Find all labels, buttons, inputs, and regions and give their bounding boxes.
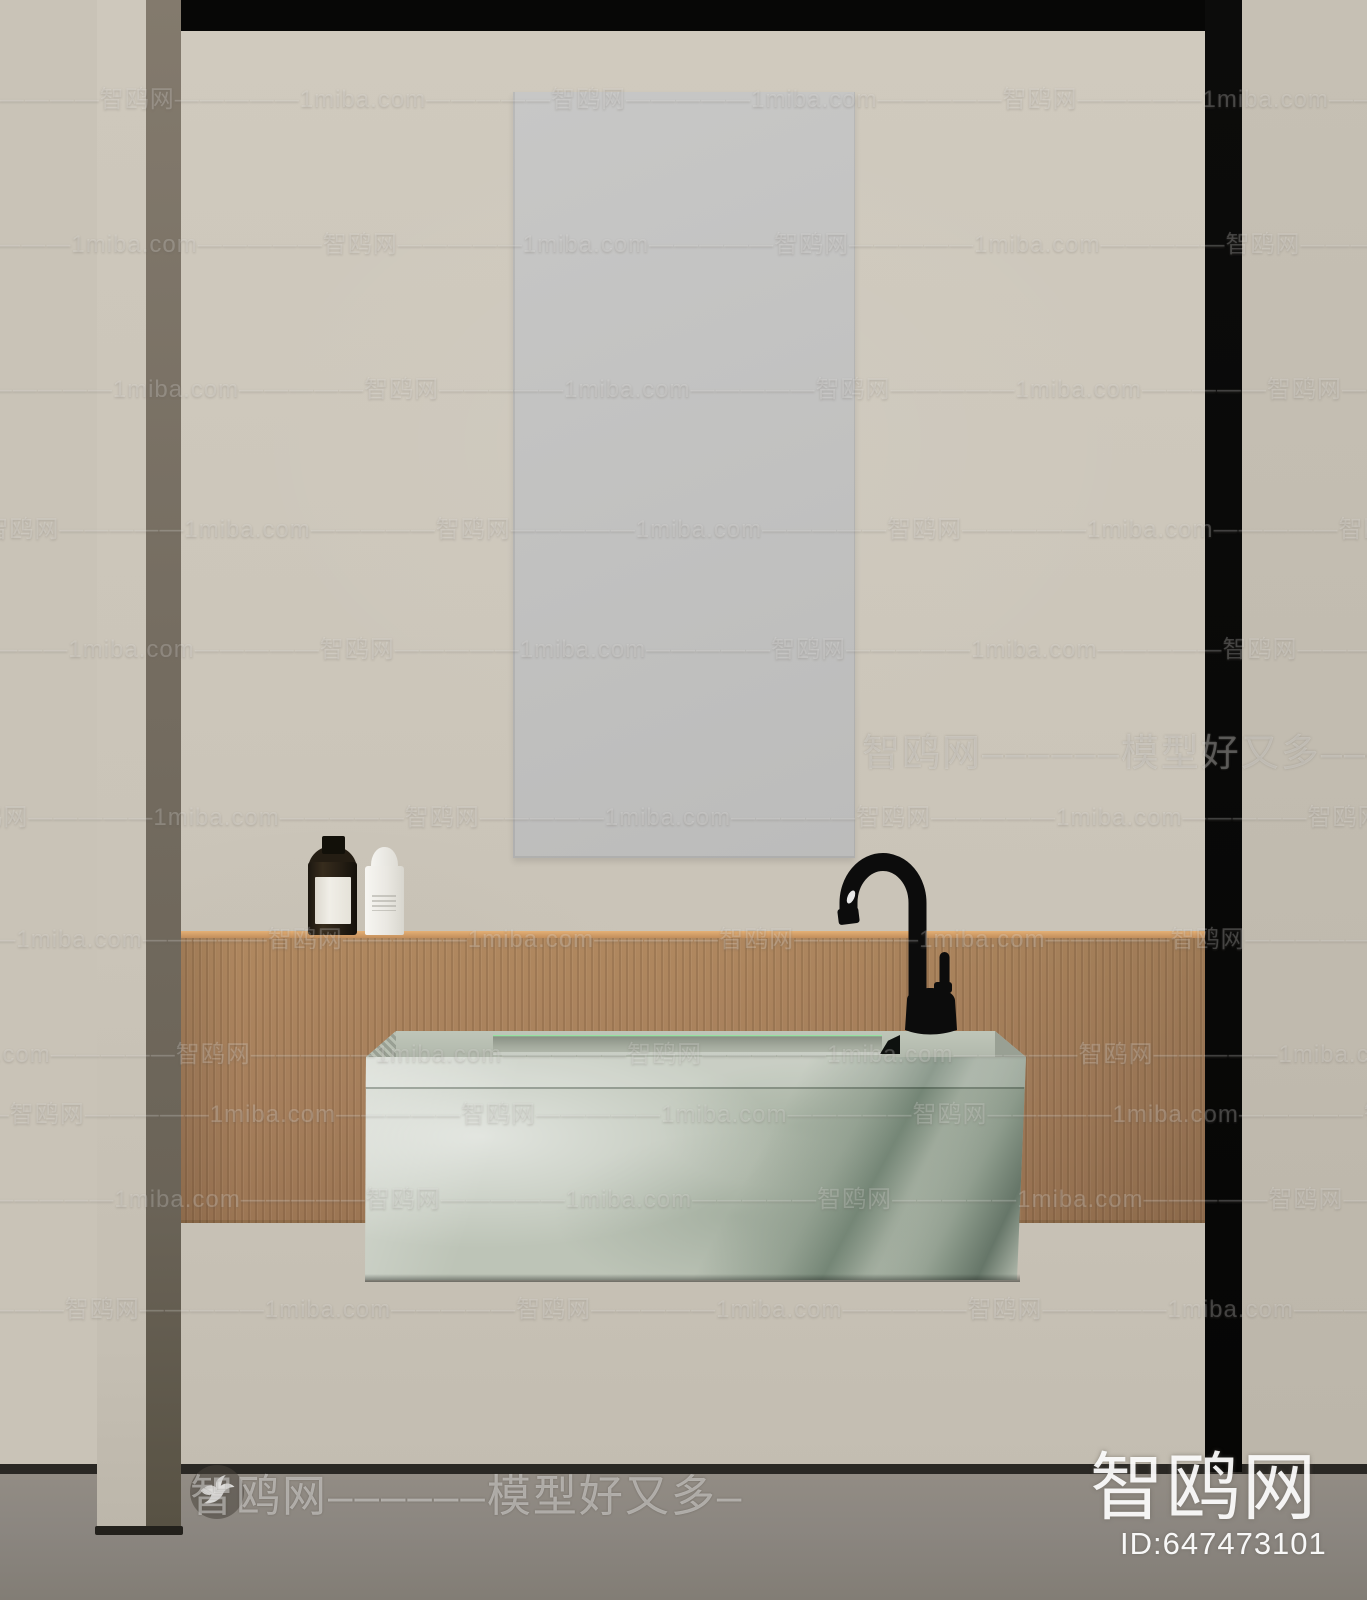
amber-bottle-cap [322,836,345,854]
door-post-front-face [97,0,146,1532]
sink-right-end-face [991,1030,1031,1058]
faucet-handle [940,952,950,990]
outer-wall-right [1242,0,1367,1472]
sink-apron-seam [366,1087,1024,1089]
door-post-side-face [146,0,181,1528]
faucet-column [909,940,926,995]
sink-marble-apron [356,1057,1046,1284]
scene: 1miba.com—————智鸥网—————1miba.com—————智鸥网—… [0,0,1367,1600]
white-bottle-label [372,895,396,911]
amber-bottle-label [315,877,351,924]
faucet-base [905,988,957,1035]
mirror [513,92,855,858]
faucet-spout [849,862,918,995]
faucet-nozzle [837,907,860,925]
marble-sink [356,1008,1046,1288]
door-post-base-shadow [95,1526,183,1535]
door-frame-right-bar [1205,0,1242,1472]
sink-basin-front-lip [493,1052,882,1055]
faucet [810,848,980,1043]
floor [0,1474,1367,1600]
sink-apron-top-fascia [365,1057,1027,1087]
door-frame-top-beam [0,0,1367,32]
sink-bottom-shadow [365,1274,1020,1282]
